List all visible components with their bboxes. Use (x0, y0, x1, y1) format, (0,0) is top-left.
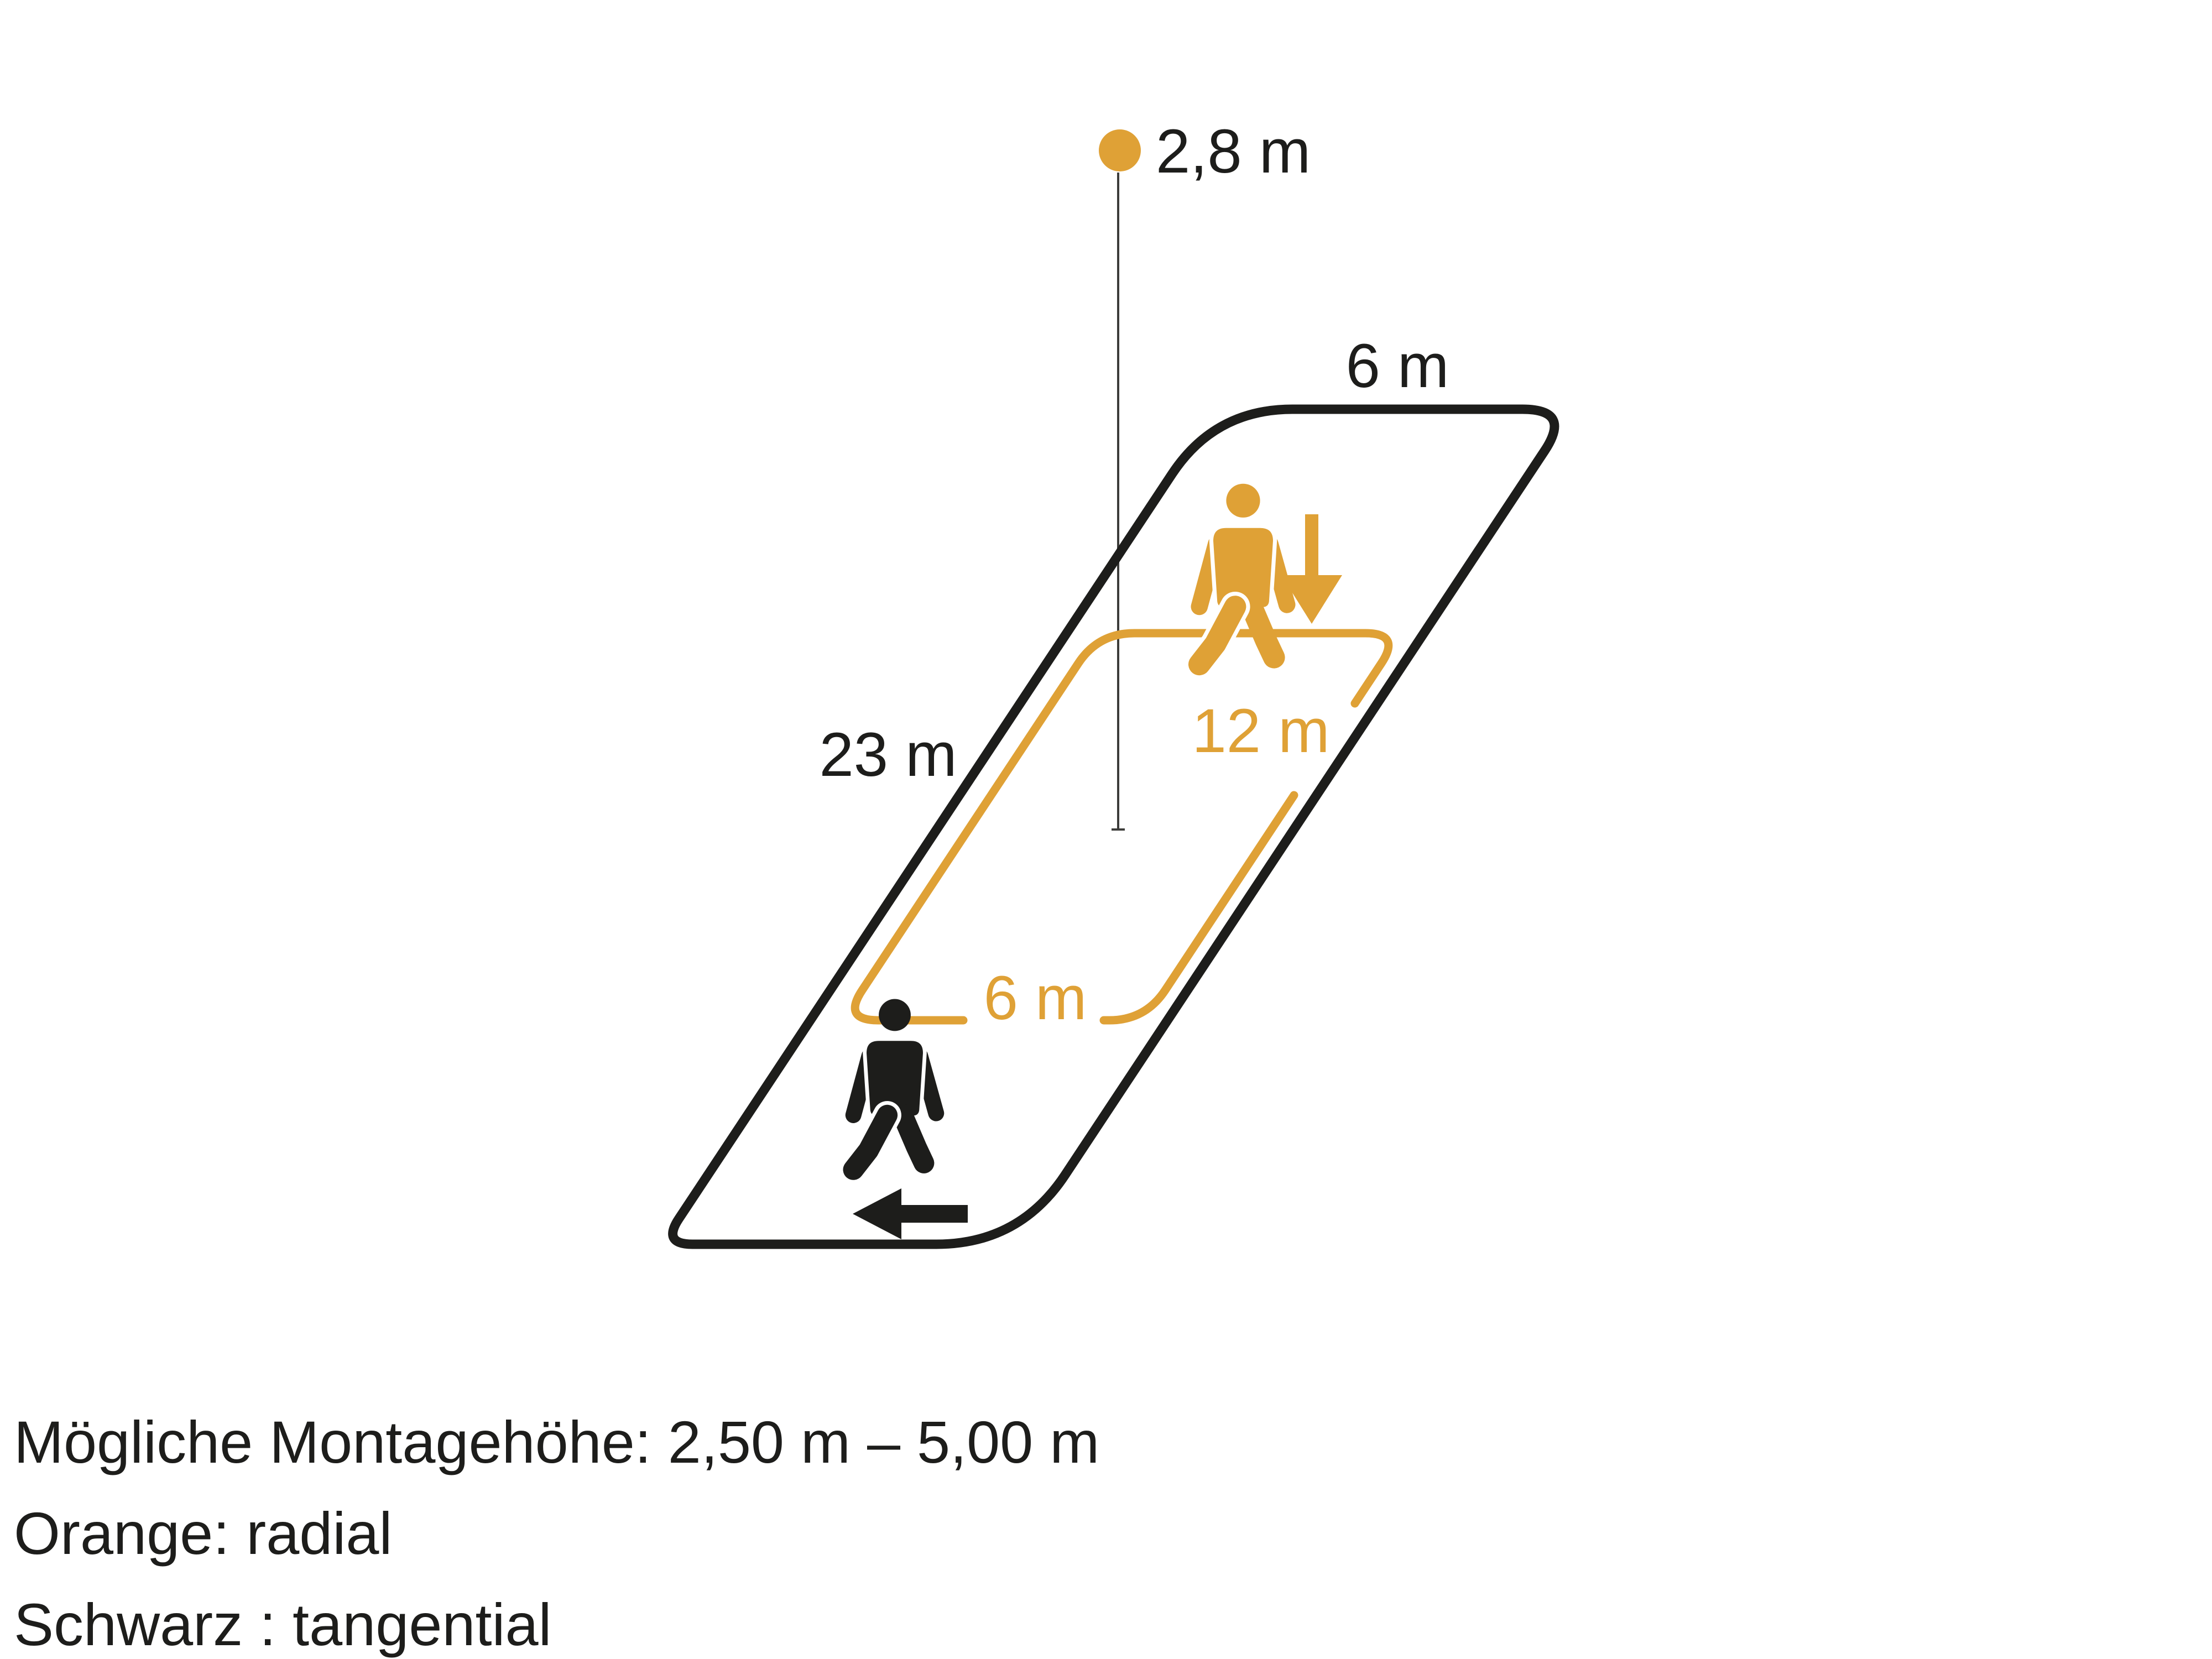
legend-schwarz-tangential: Schwarz : tangential (14, 1591, 552, 1658)
coverage-diagram: 2,8 m 6 m 23 m 12 m 6 m Mögliche Montage… (0, 0, 2212, 1659)
outer-zone-outline (673, 409, 1554, 1244)
mounting-height-label: 2,8 m (1156, 117, 1311, 186)
legend: Mögliche Montagehöhe: 2,50 m – 5,00 m Or… (14, 1408, 1099, 1658)
inner-length-label: 12 m (1192, 696, 1330, 765)
down-arrow-shaft (1305, 514, 1318, 577)
legend-mounting-height: Mögliche Montagehöhe: 2,50 m – 5,00 m (14, 1408, 1099, 1475)
head (1226, 484, 1260, 518)
tangential-person-icon (853, 999, 936, 1170)
mounting-height-line (1112, 173, 1125, 830)
inner-width-label: 6 m (984, 963, 1087, 1032)
back-leg (902, 1114, 924, 1163)
outer-width-label: 6 m (1346, 331, 1449, 400)
sensor-dot-icon (1099, 129, 1141, 171)
left-arrow-icon (853, 1188, 968, 1239)
left-arrow-head (853, 1188, 901, 1239)
detection-range-diagram-page: 2,8 m 6 m 23 m 12 m 6 m Mögliche Montage… (0, 0, 2212, 1659)
head (879, 999, 911, 1031)
inner-zone-outline-lower-right (1104, 795, 1294, 1020)
left-arrow-shaft (901, 1205, 968, 1223)
back-leg (1251, 606, 1274, 658)
legend-orange-radial: Orange: radial (14, 1500, 392, 1567)
outer-length-label: 23 m (820, 720, 957, 789)
